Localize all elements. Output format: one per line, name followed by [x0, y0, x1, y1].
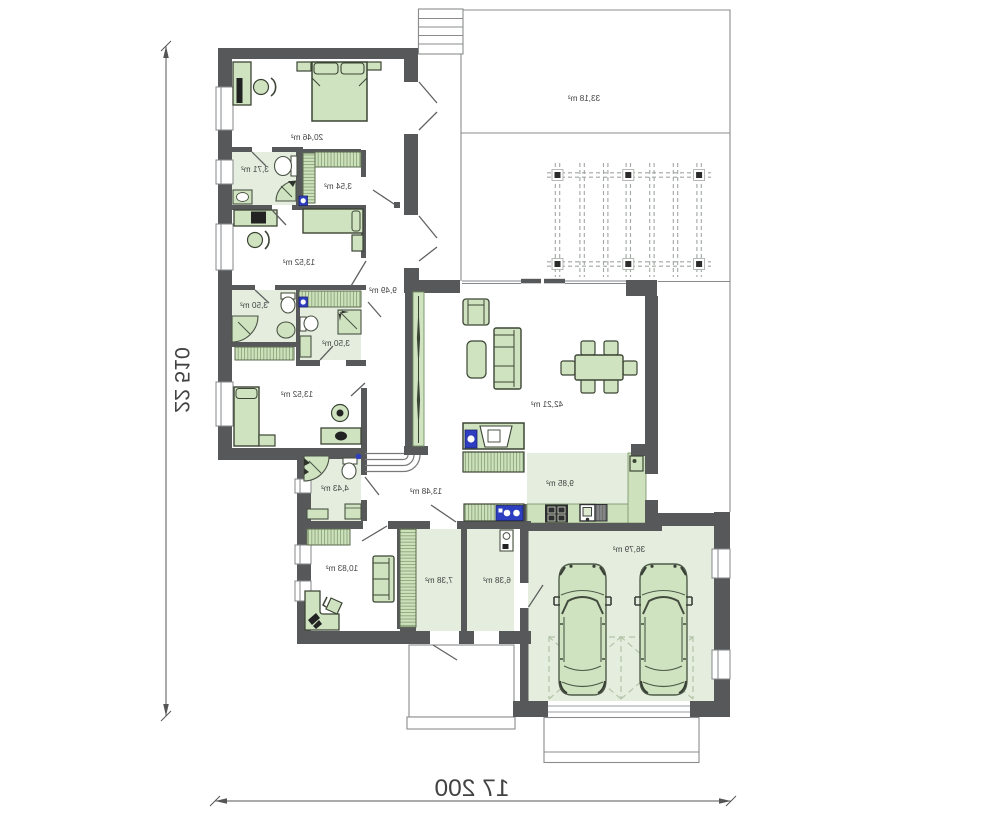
svg-text:22 510: 22 510	[170, 347, 194, 413]
svg-text:9,85 m²: 9,85 m²	[546, 479, 574, 488]
svg-text:17 200: 17 200	[435, 775, 510, 802]
svg-text:7,38 m²: 7,38 m²	[425, 576, 453, 585]
svg-text:20,46 m²: 20,46 m²	[291, 133, 324, 142]
svg-text:13,48 m²: 13,48 m²	[410, 487, 443, 496]
svg-text:3,50 m²: 3,50 m²	[322, 339, 350, 348]
svg-text:3,71 m²: 3,71 m²	[241, 165, 269, 174]
svg-text:6,38 m²: 6,38 m²	[483, 576, 511, 585]
svg-text:33,18 m²: 33,18 m²	[568, 94, 601, 103]
svg-text:3,50 m²: 3,50 m²	[240, 301, 268, 310]
svg-text:13,52 m²: 13,52 m²	[283, 258, 316, 267]
svg-text:4,43 m²: 4,43 m²	[321, 484, 349, 493]
svg-text:36,79 m²: 36,79 m²	[613, 545, 646, 554]
svg-text:3,54 m²: 3,54 m²	[324, 182, 352, 191]
svg-text:42,21 m²: 42,21 m²	[531, 400, 564, 409]
svg-text:9,49 m²: 9,49 m²	[369, 286, 397, 295]
svg-text:10,83 m²: 10,83 m²	[326, 564, 359, 573]
svg-text:13,52 m²: 13,52 m²	[281, 390, 314, 399]
